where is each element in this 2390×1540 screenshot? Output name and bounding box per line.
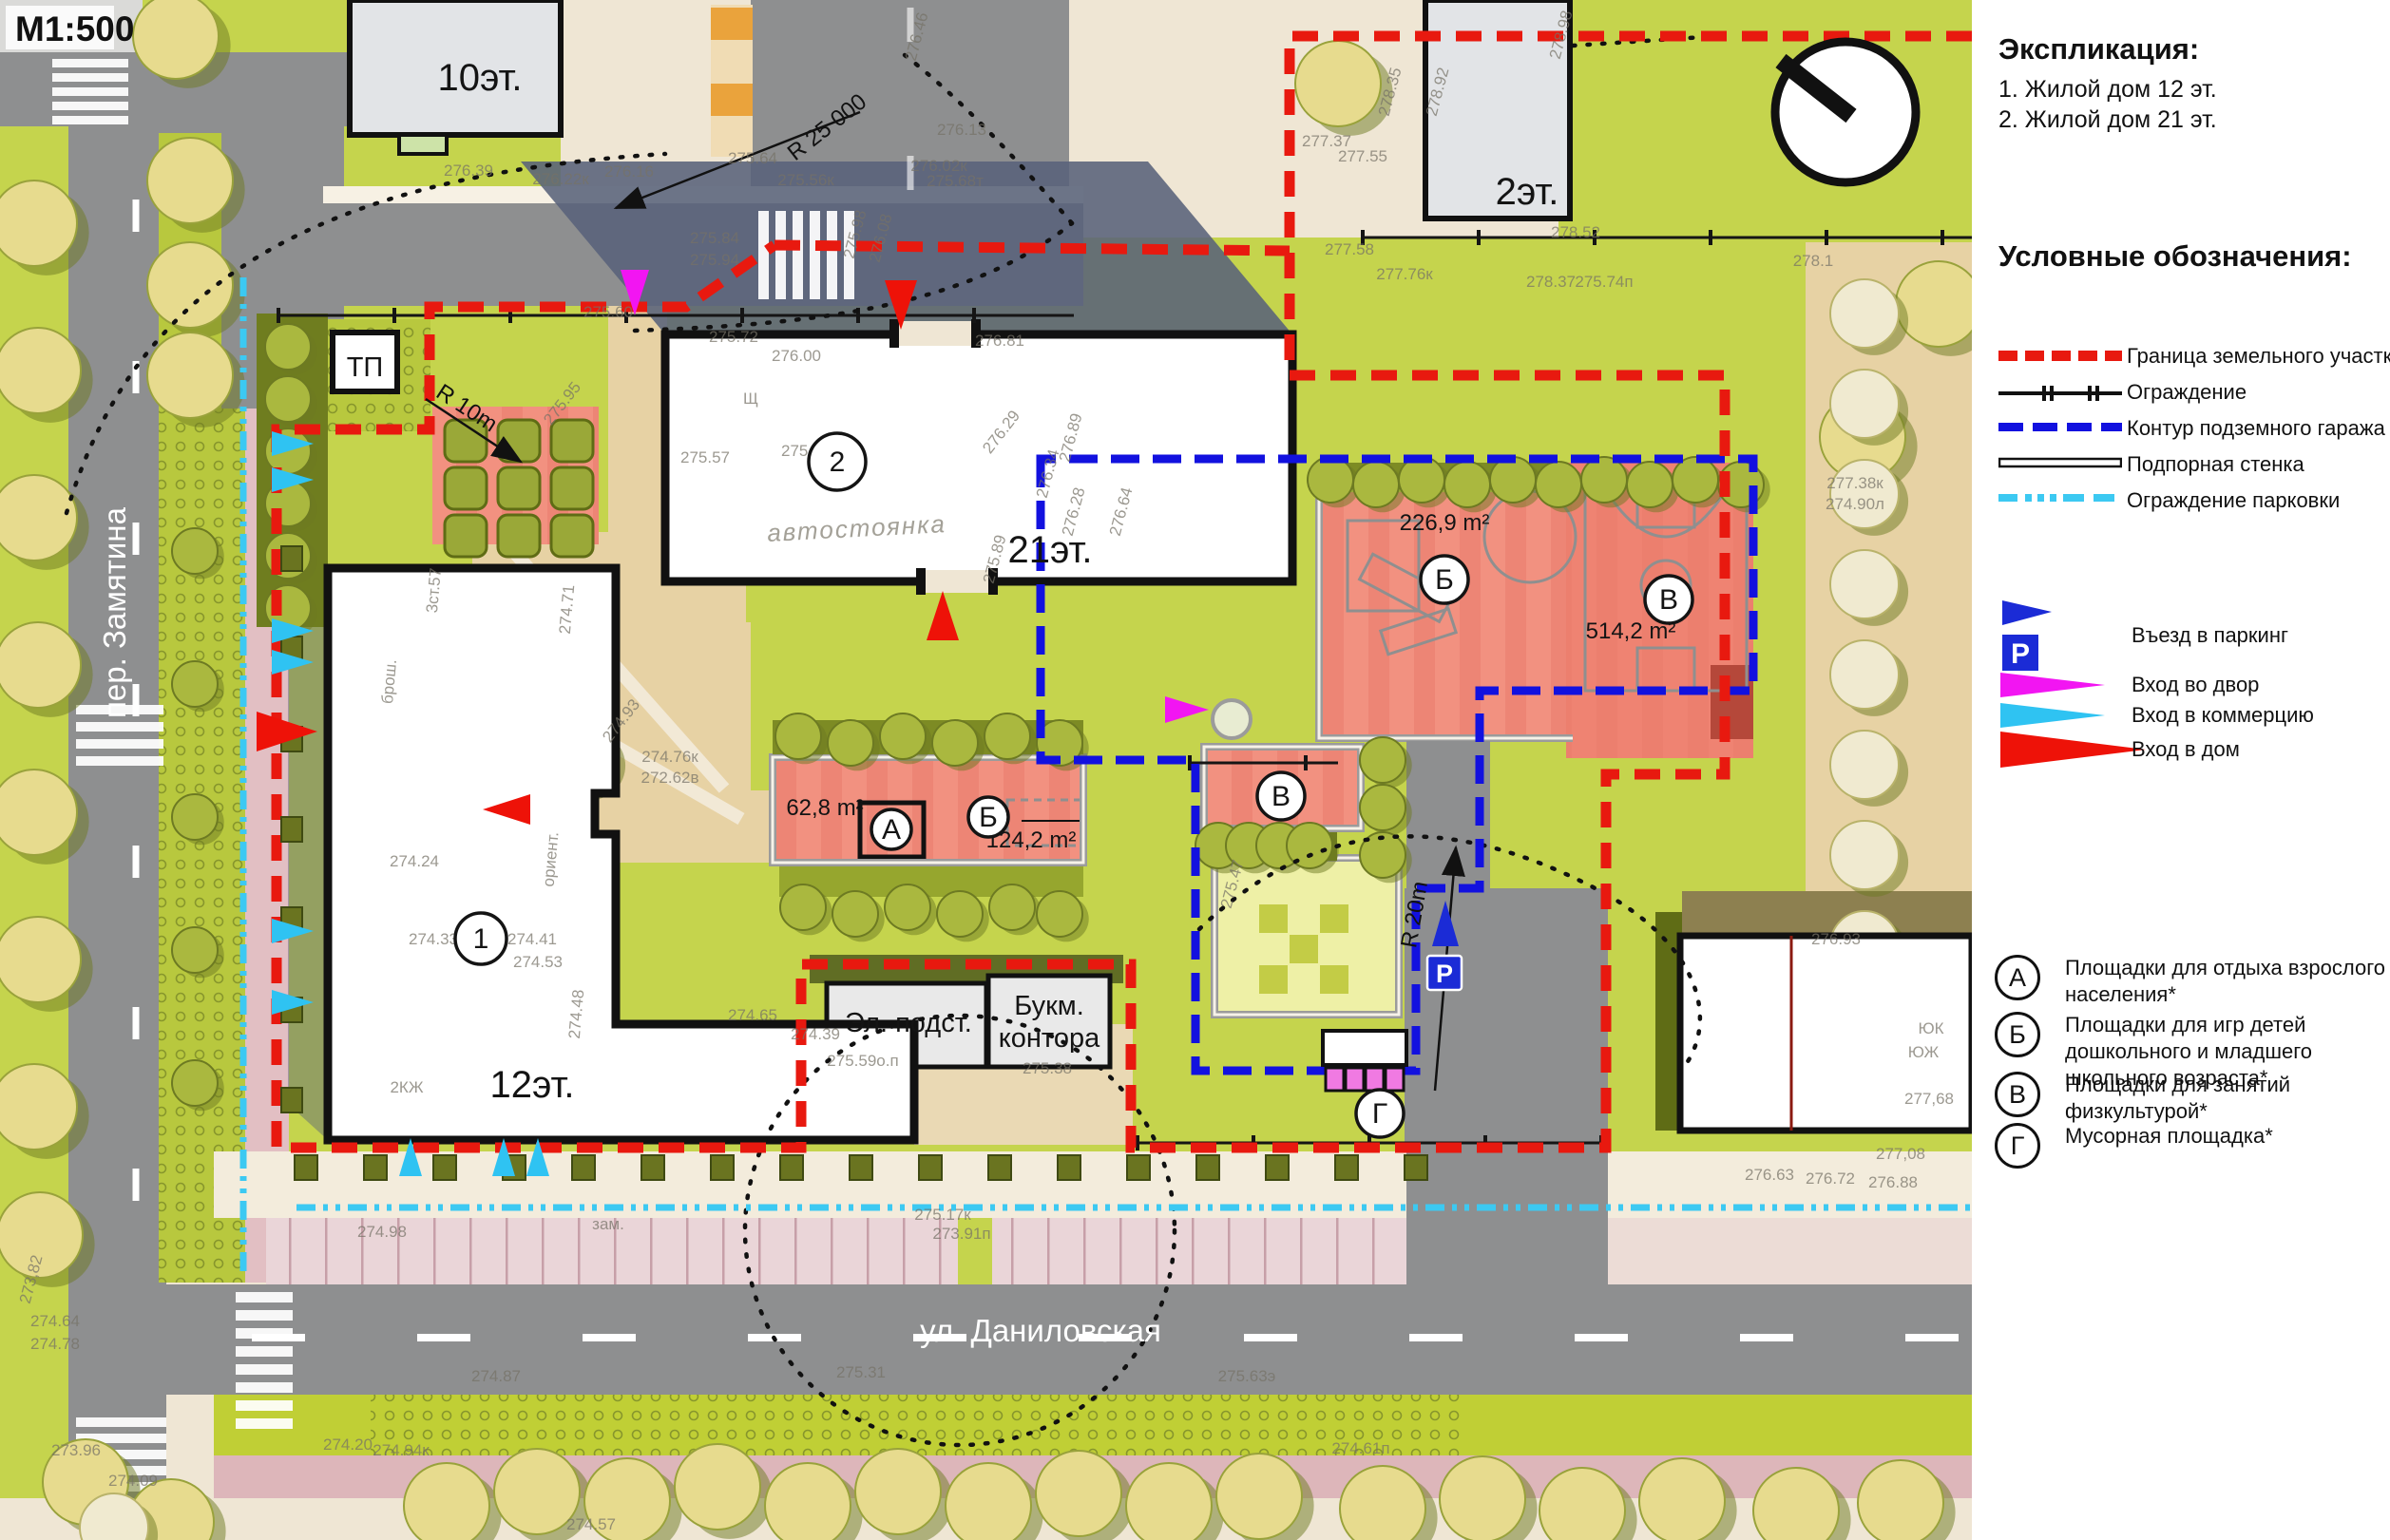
garage-line-icon: [1998, 420, 2122, 433]
crosswalk-stripe: [810, 211, 820, 299]
crosswalk-stripe: [52, 116, 128, 124]
svg-text:А: А: [882, 814, 901, 846]
map-label: 2КЖ: [390, 1078, 423, 1096]
tree: [1830, 370, 1899, 438]
map-label: 276.16: [604, 162, 654, 181]
tree: [0, 328, 81, 413]
tree: [1440, 1456, 1525, 1540]
area-marker: В: [1257, 772, 1305, 820]
map-label: 273.91п: [932, 1225, 990, 1243]
tree: [1340, 1466, 1425, 1540]
map-label: Щ: [743, 390, 758, 408]
house-entry-arrow-icon: [1998, 730, 2151, 770]
map-label: 274.87: [471, 1367, 521, 1385]
legend-item-2: 2. Жилой дом 21 эт.: [1998, 106, 2217, 134]
map-label: 276.39: [444, 162, 493, 180]
map-label: 274.24: [390, 852, 439, 870]
parking-fence-icon: [1998, 492, 2122, 504]
map-label: 274.94к: [373, 1441, 430, 1459]
tree: [1295, 41, 1381, 126]
svg-text:Г: Г: [1372, 1098, 1387, 1130]
north-arrow: [1775, 42, 1916, 182]
tree: [147, 333, 233, 418]
tree: [985, 713, 1030, 759]
tree: [932, 720, 978, 766]
crosswalk-stripe: [236, 1292, 293, 1302]
area-marker: Б: [1421, 556, 1468, 603]
map-label: 277.37: [1302, 132, 1351, 150]
area-g-circle: Г: [1995, 1123, 2040, 1169]
square-tree: [551, 515, 593, 557]
map-label: 274.53: [513, 953, 563, 971]
scale-label: М1:500: [6, 6, 134, 49]
tree: [989, 884, 1035, 930]
tree: [0, 622, 81, 708]
crosswalk-stripe: [758, 211, 769, 299]
commerce-entry-arrow-icon: [1998, 701, 2113, 730]
tree: [1490, 457, 1536, 503]
tree: [172, 927, 218, 973]
area-marker: А: [871, 809, 911, 849]
crosswalk-stripe: [236, 1328, 293, 1339]
parking-sign-letter: P: [1436, 960, 1453, 988]
map-label: 274.78: [30, 1335, 80, 1353]
square-tree: [498, 467, 540, 509]
map-label: 272.62в: [641, 769, 698, 787]
fence-post: [281, 817, 302, 842]
map-label: 276.81: [975, 332, 1024, 350]
tree: [1216, 1454, 1302, 1539]
map-label: 274.65: [728, 1006, 777, 1024]
area-marker: В: [1645, 576, 1692, 623]
square-tree: [498, 515, 540, 557]
map-label: 21эт.: [1007, 529, 1092, 571]
map-label: Эл. подст.: [845, 1008, 972, 1038]
tree: [1536, 462, 1581, 507]
square-tree: [551, 467, 593, 509]
area-b-circle: Б: [1995, 1012, 2040, 1057]
fence-post: [919, 1155, 942, 1180]
map-label: 277,08: [1876, 1145, 1925, 1163]
fence-post: [711, 1155, 734, 1180]
map-label: 275.68т: [927, 172, 984, 190]
tree: [1399, 457, 1444, 503]
square-tree: [445, 515, 487, 557]
square-tree: [498, 420, 540, 462]
crosswalk-stripe: [52, 102, 128, 110]
crosswalk-stripe: [236, 1382, 293, 1393]
tree: [1444, 462, 1490, 507]
tree: [1858, 1460, 1943, 1540]
crosswalk-stripe: [52, 59, 128, 67]
tree: [1360, 785, 1405, 830]
square-tree: [445, 467, 487, 509]
map-label: Букм.: [1014, 991, 1084, 1021]
dumpsters: [1326, 1068, 1404, 1091]
map-label: 2эт.: [1496, 171, 1559, 213]
tree: [0, 1064, 77, 1150]
tree: [880, 713, 926, 759]
tree: [855, 1449, 941, 1534]
fence-post: [988, 1155, 1011, 1180]
map-label: 278.37: [1526, 273, 1576, 291]
area-marker: 2: [809, 433, 866, 490]
svg-text:1: 1: [473, 923, 489, 955]
tree: [1353, 462, 1399, 507]
tree: [1830, 279, 1899, 348]
map-label: ТП: [347, 352, 384, 383]
map-label: 275.63э: [1218, 1367, 1276, 1385]
area-a-circle: А: [1995, 955, 2040, 1000]
map-label: 275.74п: [1575, 273, 1633, 291]
crosswalk-stripe: [236, 1400, 293, 1411]
tree: [1037, 891, 1082, 937]
tree: [0, 917, 81, 1002]
svg-text:В: В: [1271, 781, 1291, 812]
map-label: 275.72: [709, 328, 758, 346]
parking-entry-icon: P: [1998, 599, 2055, 675]
map-label: 277,68: [1904, 1090, 1954, 1108]
tree: [1639, 1458, 1725, 1540]
map-label: 275.64: [728, 149, 777, 167]
map-label: 274.90л: [1826, 495, 1884, 513]
legend-symbols-title: Условные обозначения:: [1998, 239, 2352, 274]
tree: [1581, 457, 1627, 503]
fence-post: [780, 1155, 803, 1180]
crosswalk-stripe: [775, 211, 786, 299]
map-label: 274.61п: [1331, 1439, 1389, 1457]
map-label: 275.56к: [777, 171, 834, 189]
tree: [172, 528, 218, 574]
tree: [1830, 731, 1899, 799]
map-label: зам.: [592, 1215, 624, 1233]
tree: [832, 891, 878, 937]
tree: [675, 1444, 760, 1530]
fence-post: [1335, 1155, 1358, 1180]
tree: [946, 1463, 1031, 1540]
fence-post: [1127, 1155, 1150, 1180]
map-label: 274.76к: [641, 748, 698, 766]
map-label: 277.58: [1325, 240, 1374, 258]
map-label: ЮЖ: [1908, 1043, 1940, 1061]
map-label: 275.94: [690, 251, 739, 269]
tree: [265, 376, 311, 422]
crosswalk-stripe: [76, 1417, 166, 1427]
map-label: 275.57: [680, 448, 730, 466]
tree: [172, 794, 218, 840]
tree: [780, 884, 826, 930]
tree: [0, 475, 77, 561]
fence-post: [281, 546, 302, 571]
map-label: 226,9 m²: [1400, 510, 1490, 536]
map-label: 276.22к: [532, 170, 589, 188]
tree: [765, 1463, 851, 1540]
tree: [1830, 821, 1899, 889]
fence-post: [364, 1155, 387, 1180]
fence-post: [1196, 1155, 1219, 1180]
map-label: 274.57: [566, 1515, 616, 1533]
tree: [1830, 460, 1899, 528]
parking-sign: P: [1427, 956, 1462, 990]
tree: [937, 891, 983, 937]
crosswalk-stripe: [52, 73, 128, 82]
map-label: 274.39: [791, 1025, 840, 1043]
tree: [172, 661, 218, 707]
map-label: пер. Замятина: [97, 506, 132, 718]
fence-post: [433, 1155, 456, 1180]
map-label: 274.33: [409, 930, 458, 948]
tree: [1627, 462, 1673, 507]
retaining-wall-icon: [1998, 456, 2122, 469]
boundary-line-icon: [1998, 348, 2122, 363]
map-label: 12эт.: [489, 1064, 574, 1106]
scale-text: М1:500: [15, 10, 134, 48]
crosswalk-stripe: [52, 87, 128, 96]
crosswalk-stripe: [827, 211, 837, 299]
fence-line-icon: [1998, 384, 2122, 403]
map-label: 10эт.: [437, 57, 522, 99]
tree: [133, 0, 219, 79]
fence-post: [1266, 1155, 1289, 1180]
svg-text:Б: Б: [1435, 564, 1454, 596]
fence-post: [641, 1155, 664, 1180]
map-label: 276.63: [1745, 1166, 1794, 1184]
tree: [1673, 457, 1718, 503]
map-label: 276.72: [1806, 1169, 1855, 1188]
tree: [0, 181, 77, 266]
tree: [1308, 457, 1353, 503]
map-label: 278.1: [1793, 252, 1834, 270]
tree: [172, 1060, 218, 1106]
map-label: 275.60: [583, 303, 633, 321]
svg-text:2: 2: [830, 447, 846, 478]
tree: [1830, 550, 1899, 618]
map-label: 274.41: [507, 930, 557, 948]
tree: [775, 713, 821, 759]
area-marker: 1: [455, 913, 507, 964]
fence-post: [850, 1155, 872, 1180]
legend-item-1: 1. Жилой дом 12 эт.: [1998, 76, 2217, 104]
crosswalk-stripe: [236, 1346, 293, 1357]
map-label: 276.88: [1868, 1173, 1918, 1191]
tree: [265, 324, 311, 370]
tree: [0, 770, 77, 855]
map-label: 273.96: [51, 1441, 101, 1459]
svg-text:Б: Б: [979, 802, 998, 833]
crosswalk-stripe: [76, 739, 163, 749]
map-label: 275.31: [836, 1363, 886, 1381]
tree: [1360, 737, 1405, 783]
map-label: 275.84: [690, 229, 739, 247]
map-label: 274.09: [108, 1472, 158, 1490]
map-label: ул. Даниловская: [920, 1313, 1161, 1348]
tree: [828, 720, 873, 766]
fence-post: [295, 1155, 317, 1180]
tree: [1126, 1463, 1212, 1540]
fence-post: [281, 1088, 302, 1112]
site-plan-map: P М1:500 пер. Замятинаул. Даниловская10э…: [0, 0, 1972, 1540]
crosswalk-stripe: [236, 1418, 293, 1429]
map-label: 276.13: [937, 121, 986, 139]
legend-panel: Экспликация: 1. Жилой дом 12 эт. 2. Жило…: [1972, 0, 2390, 1540]
fence-post: [1405, 1155, 1427, 1180]
crosswalk-stripe: [793, 211, 803, 299]
map-label: 275.17к: [914, 1206, 971, 1224]
map-label: 274.20: [323, 1435, 373, 1454]
fence-post: [1058, 1155, 1080, 1180]
map-label: 274.98: [357, 1223, 407, 1241]
legend-title: Экспликация:: [1998, 32, 2199, 67]
yard-entry-arrow-icon: [1998, 671, 2113, 699]
area-marker: Г: [1356, 1090, 1404, 1137]
tree: [404, 1463, 489, 1540]
site-plan-page: { "scale_label": "М1:500", "p_sign": "P"…: [0, 0, 2390, 1540]
tree: [1036, 1451, 1121, 1536]
crosswalk-stripe: [236, 1310, 293, 1321]
map-label: 277.76к: [1376, 265, 1433, 283]
svg-text:P: P: [2011, 638, 2030, 670]
map-label: 278.52: [1551, 223, 1600, 241]
map-label: 274.64: [30, 1312, 80, 1330]
tree: [1896, 261, 1972, 347]
map-label: 62,8 m²: [786, 795, 863, 821]
map-label: контора: [999, 1023, 1100, 1054]
map-label: 275.38: [1023, 1059, 1072, 1077]
map-label: ЮК: [1918, 1019, 1943, 1037]
map-label: 276.93: [1811, 930, 1861, 948]
map-label: 275.59о.п: [827, 1052, 898, 1070]
tree: [1830, 640, 1899, 709]
crosswalk-stripe: [76, 756, 163, 766]
tree: [147, 138, 233, 223]
fence-post: [572, 1155, 595, 1180]
area-marker: Б: [968, 797, 1008, 837]
waste-area: [1323, 1031, 1406, 1091]
map-label: 277.38к: [1826, 474, 1883, 492]
crosswalk-stripe: [236, 1364, 293, 1375]
map-label: 276.00: [772, 347, 821, 365]
square-tree: [551, 420, 593, 462]
area-v-circle: В: [1995, 1072, 2040, 1117]
svg-text:В: В: [1659, 584, 1678, 616]
crosswalk-stripe: [76, 722, 163, 732]
tree: [885, 884, 930, 930]
